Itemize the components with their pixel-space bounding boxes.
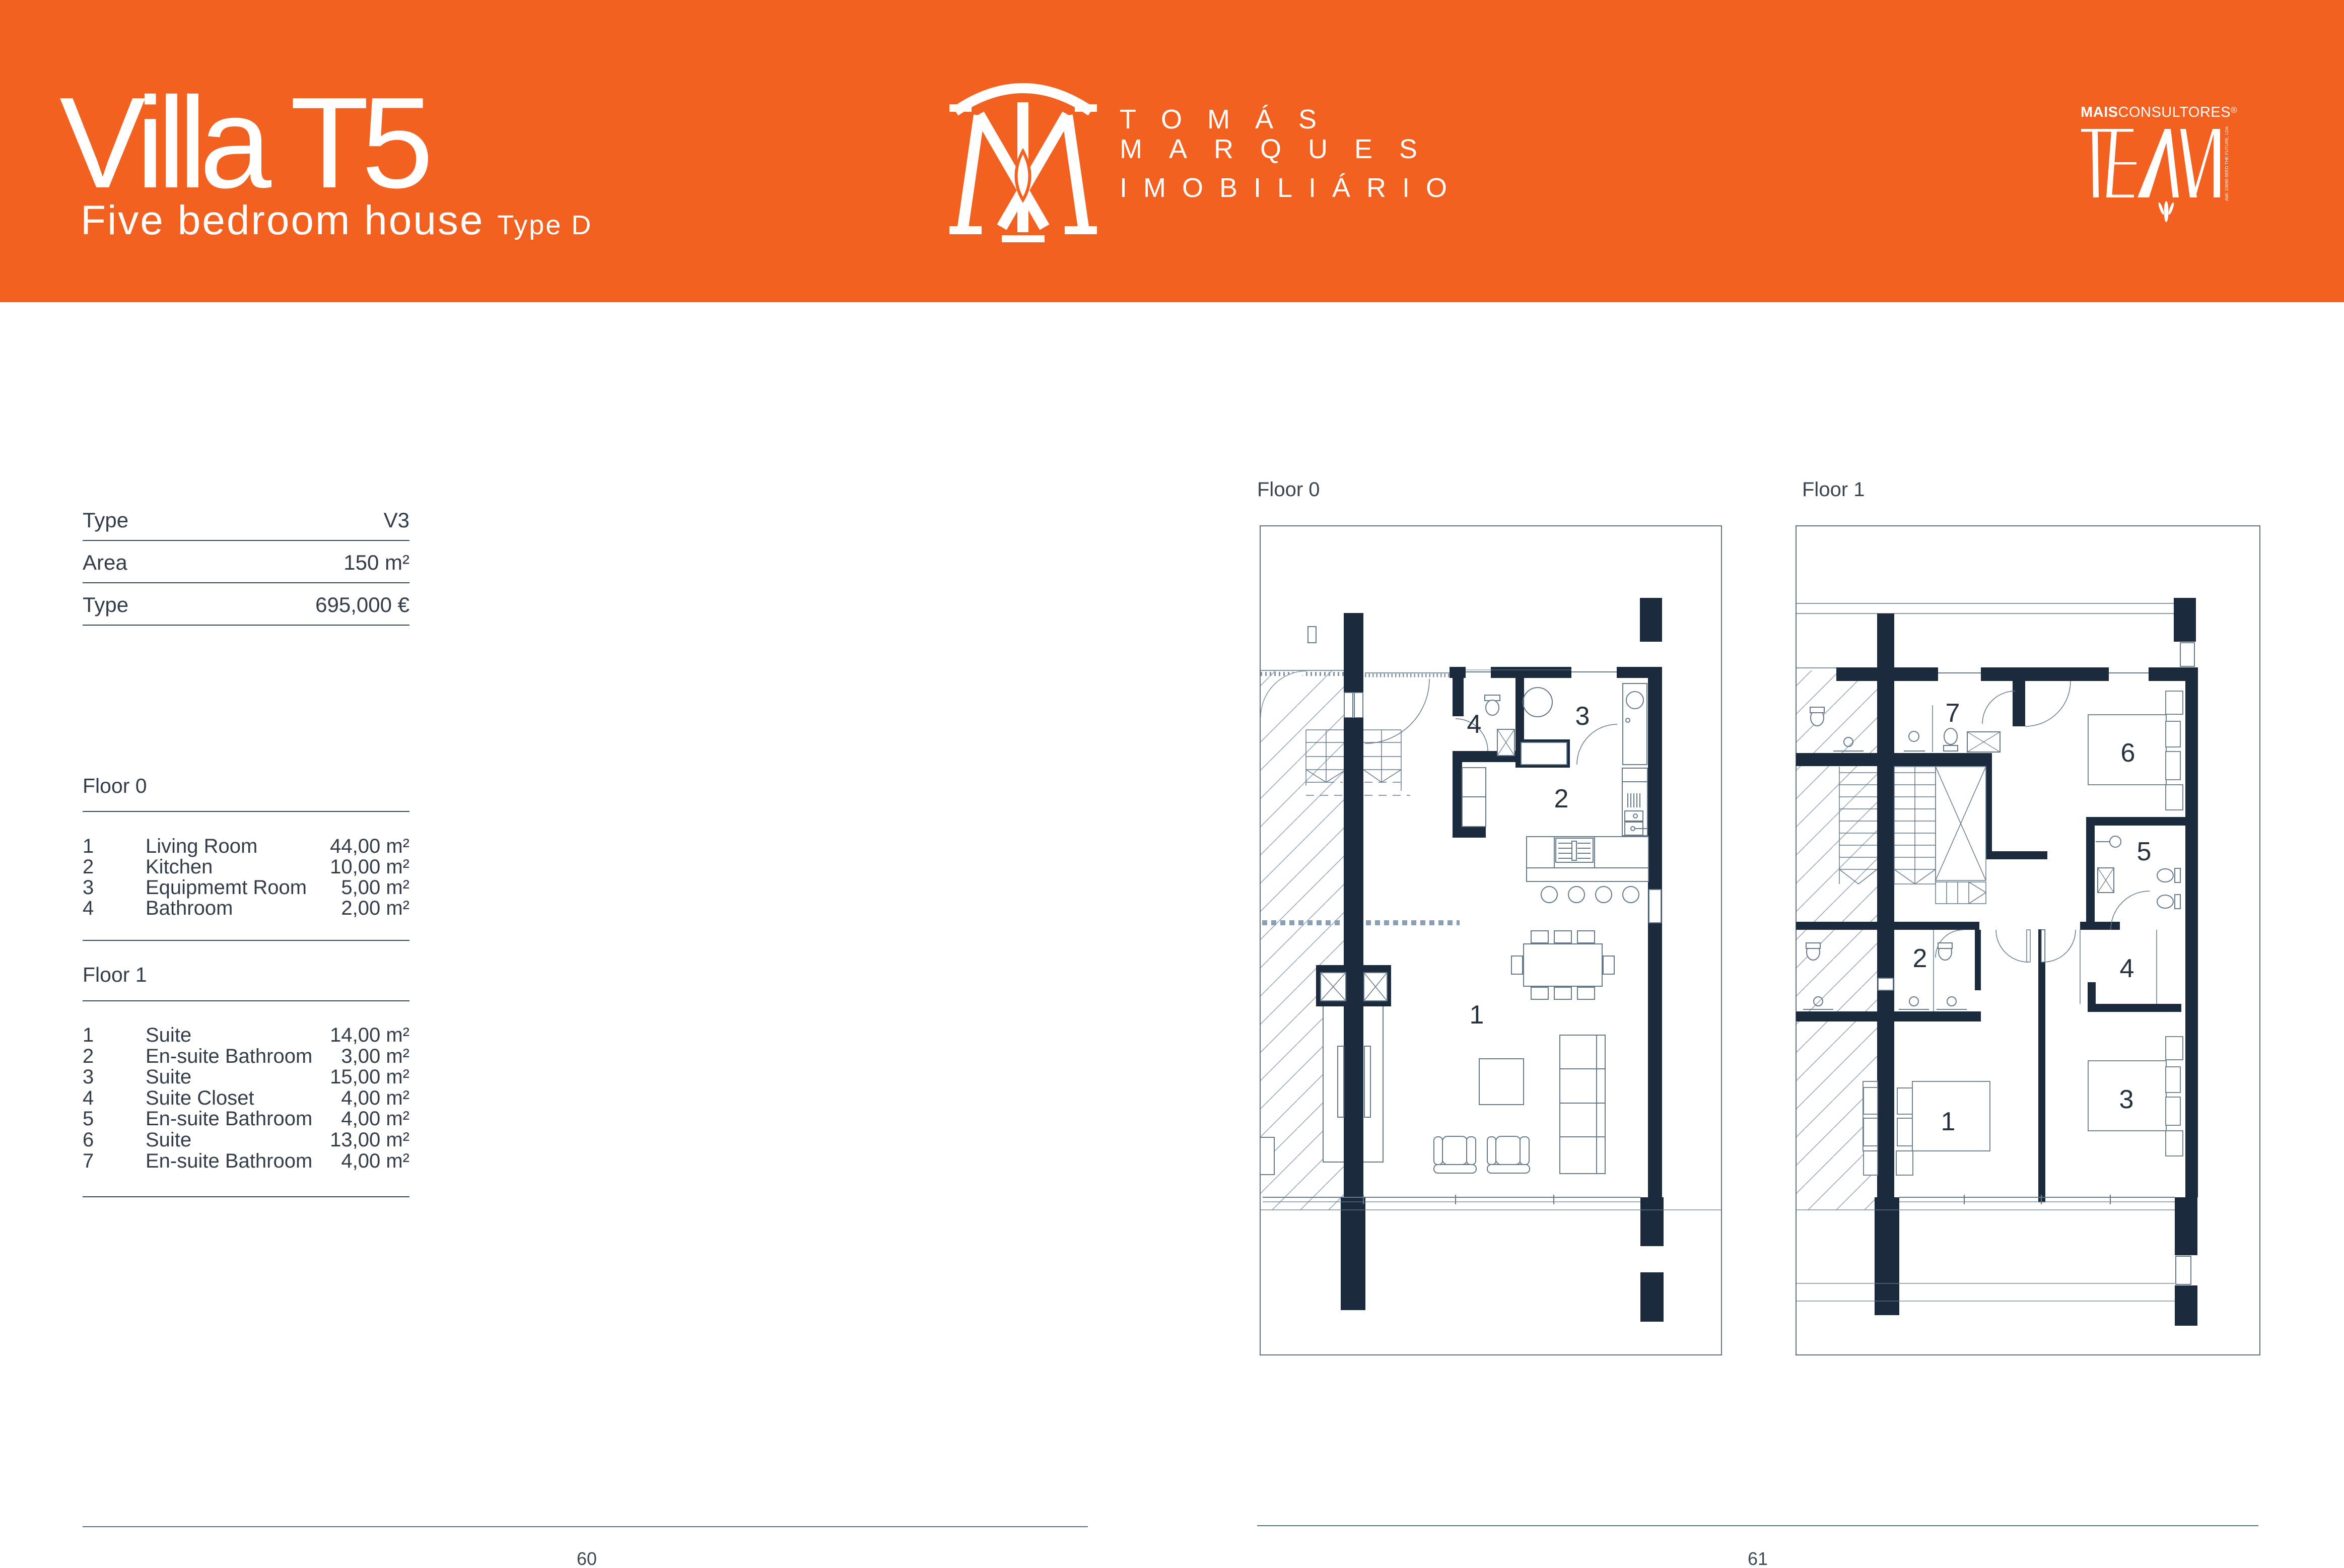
svg-text:5: 5 [2137,837,2152,866]
svg-text:3: 3 [2119,1085,2134,1114]
svg-text:1: 1 [1941,1107,1956,1136]
svg-text:4: 4 [2120,954,2134,983]
svg-text:7: 7 [1946,699,1960,728]
svg-text:3: 3 [1575,702,1590,731]
svg-text:AMI: 23990 SEED THE FUTURE, L: AMI: 23990 SEED THE FUTURE, LDA. [2224,126,2229,201]
svg-text:2: 2 [1554,784,1569,813]
svg-text:6: 6 [2121,738,2135,768]
svg-text:1: 1 [1470,1000,1484,1030]
svg-text:4: 4 [1467,710,1482,739]
svg-text:2: 2 [1913,944,1927,973]
